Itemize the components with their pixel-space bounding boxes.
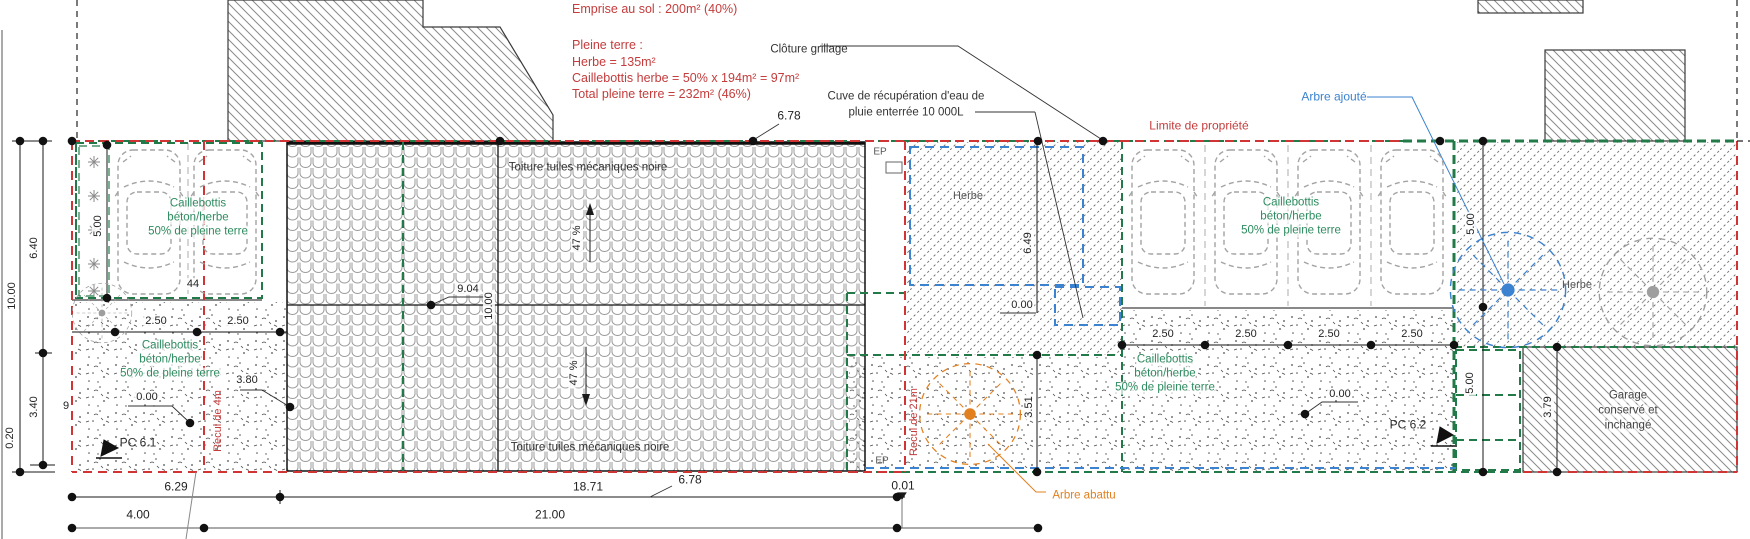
label-caillebottis-drive-left-3: 50% de pleine terre xyxy=(119,368,221,381)
label-caillebottis-parking-right-3: 50% de pleine terre xyxy=(1240,225,1342,238)
label-caillebottis-drive-left-1: Caillebottis xyxy=(141,340,199,353)
neighbor-building-top-right-small xyxy=(1478,0,1583,13)
label-ep-top: EP xyxy=(873,147,886,158)
label-pc-6-1: PC 6.1 xyxy=(120,436,157,449)
shrub-icon xyxy=(88,156,100,168)
label-caillebottis-drive-right-1: Caillebottis xyxy=(1136,354,1194,367)
label-arbre-abattu: Arbre abattu xyxy=(1052,490,1115,503)
dim-bottom-mid: 18.71 xyxy=(571,480,605,493)
neighbor-building-top-left xyxy=(228,0,553,141)
label-caillebottis-parking-left-1: Caillebottis xyxy=(169,198,227,211)
dim-right-lower: 5.00 xyxy=(1464,370,1476,395)
label-toiture-bottom: Toiture tuiles mécaniques noire xyxy=(511,442,670,455)
label-cuve-line2: pluie enterrée 10 000L xyxy=(848,107,963,120)
label-caillebottis-drive-right-2: béton/herbe xyxy=(1133,368,1196,381)
dim-level-left: 0.00 xyxy=(134,391,159,403)
label-recul-4m: Recul de 4m xyxy=(212,390,224,452)
label-garage-line3: inchangé xyxy=(1605,420,1652,433)
dim-level-center: 0.00 xyxy=(1009,299,1034,311)
gravel-center xyxy=(849,357,1122,468)
roof-area xyxy=(287,142,865,471)
label-pc-6-2: PC 6.2 xyxy=(1390,418,1427,431)
label-limite-propriete: Limite de propriété xyxy=(1149,119,1248,132)
dim-bottom-row2-left: 4.00 xyxy=(124,508,151,521)
dim-left-offset: 0.20 xyxy=(4,425,16,450)
label-caillebottis-parking-right-1: Caillebottis xyxy=(1262,197,1320,210)
dim-roof-depth: 10.00 xyxy=(483,290,495,322)
dim-top-width: 6.78 xyxy=(775,109,802,122)
grass-area-right xyxy=(1456,142,1737,347)
dim-left-total: 10.00 xyxy=(6,280,18,312)
dim-slope-top: 47 % xyxy=(571,223,583,252)
dim-stall-right-4: 2.50 xyxy=(1399,328,1424,340)
dim-left-side: 9 xyxy=(61,400,71,412)
dim-stall-right-3: 2.50 xyxy=(1316,328,1341,340)
dim-stall-left-2: 2.50 xyxy=(225,315,250,327)
dim-roof-left-width: 9.04 xyxy=(455,283,480,295)
dim-level-right: 0.00 xyxy=(1327,388,1352,400)
dim-stall-right-2: 2.50 xyxy=(1233,328,1258,340)
shrub-icon xyxy=(88,258,100,270)
legend-herbe: Herbe = 135m² xyxy=(572,55,656,69)
label-recul-21m: Recul de 21m xyxy=(908,388,920,456)
neighbor-buildings xyxy=(228,0,1685,141)
dim-drive-width: 3.80 xyxy=(234,374,259,386)
label-place-number: 44 xyxy=(185,278,201,290)
dim-left-upper: 6.40 xyxy=(28,235,40,260)
site-plan: Emprise au sol : 200m² (40%) Pleine terr… xyxy=(0,0,1750,539)
shrub-icon xyxy=(88,285,100,297)
label-garage-line2: conservé et xyxy=(1598,405,1657,418)
label-caillebottis-drive-right-3: 50% de pleine terre xyxy=(1114,382,1216,395)
dim-garage-side: 3.79 xyxy=(1542,394,1554,419)
dim-bottom-left: 6.29 xyxy=(162,480,189,493)
dim-slope-bottom: 47 % xyxy=(568,358,580,387)
dim-bottom-gap: 0.01 xyxy=(889,479,916,492)
dim-stall-right-1: 2.50 xyxy=(1150,328,1175,340)
shrub-icon xyxy=(88,190,100,202)
label-arbre-ajoute: Arbre ajouté xyxy=(1301,90,1366,103)
car-icon xyxy=(1128,150,1198,294)
grass-area-center xyxy=(907,142,1122,355)
dim-bottom-row2-mid: 21.00 xyxy=(533,508,567,521)
label-garage-line1: Garage xyxy=(1609,390,1647,403)
label-caillebottis-parking-right-2: béton/herbe xyxy=(1259,211,1322,224)
dim-right-upper: 5.00 xyxy=(1465,211,1477,236)
label-herbe-center: Herbe xyxy=(953,190,983,202)
dim-herbe-depth: 6.49 xyxy=(1022,230,1034,255)
neighbor-building-right xyxy=(1545,50,1685,141)
legend-pleine-terre-title: Pleine terre : xyxy=(572,38,643,52)
legend-caillebottis-herbe: Caillebottis herbe = 50% x 194m² = 97m² xyxy=(572,71,799,85)
dim-bottom-roof: 6.78 xyxy=(676,473,703,486)
label-ep-bottom: EP xyxy=(875,456,888,467)
dim-tree-offset: 3.51 xyxy=(1023,394,1035,419)
car-icon xyxy=(1377,150,1447,294)
label-cloture-grillage: Clôture grillage xyxy=(770,44,847,57)
label-herbe-right: Herbe xyxy=(1562,279,1592,291)
legend-emprise: Emprise au sol : 200m² (40%) xyxy=(572,2,737,16)
dim-stall-left-1: 2.50 xyxy=(143,315,168,327)
label-cuve-line1: Cuve de récupération d'eau de xyxy=(828,91,985,104)
label-caillebottis-drive-left-2: béton/herbe xyxy=(138,354,201,367)
legend-total-pleine-terre: Total pleine terre = 232m² (46%) xyxy=(572,87,751,101)
label-toiture-top: Toiture tuiles mécaniques noire xyxy=(509,162,668,175)
dim-left-lower: 3.40 xyxy=(28,394,40,419)
label-caillebottis-parking-left-2: béton/herbe xyxy=(166,212,229,225)
dim-hedge-depth: 5.00 xyxy=(92,213,104,238)
label-caillebottis-parking-left-3: 50% de pleine terre xyxy=(147,226,249,239)
